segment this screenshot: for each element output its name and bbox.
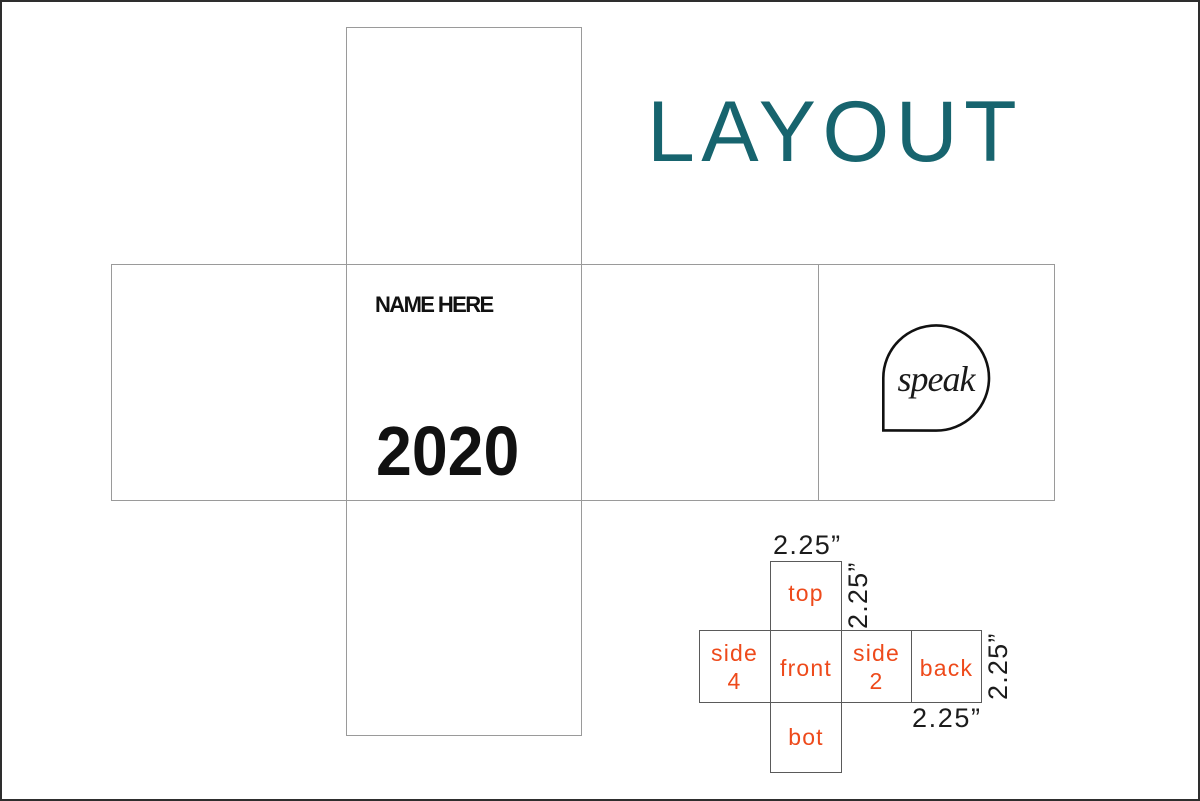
svg-text:speak: speak [898,359,977,399]
